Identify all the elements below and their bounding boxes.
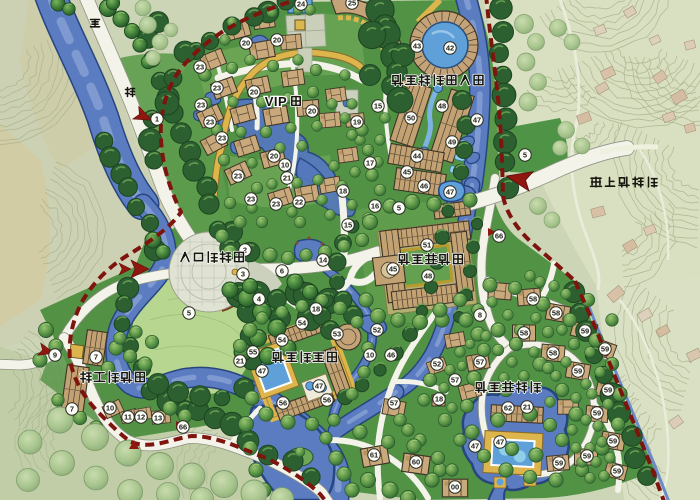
svg-text:23: 23 — [196, 63, 204, 72]
svg-text:44: 44 — [413, 152, 422, 161]
svg-text:51: 51 — [423, 241, 431, 250]
svg-text:47: 47 — [473, 116, 481, 125]
svg-text:59: 59 — [593, 409, 601, 418]
svg-text:54: 54 — [298, 319, 307, 328]
svg-text:21: 21 — [283, 174, 291, 183]
svg-text:11: 11 — [124, 413, 132, 422]
svg-text:23: 23 — [234, 172, 242, 181]
svg-text:56: 56 — [323, 396, 331, 405]
svg-text:6: 6 — [280, 267, 284, 276]
svg-text:58: 58 — [552, 309, 560, 318]
svg-text:66: 66 — [179, 423, 187, 432]
svg-text:46: 46 — [420, 182, 428, 191]
svg-text:3: 3 — [241, 270, 245, 279]
svg-text:50: 50 — [407, 114, 415, 123]
svg-text:20: 20 — [242, 39, 250, 48]
svg-text:47: 47 — [258, 367, 266, 376]
svg-text:23: 23 — [213, 84, 221, 93]
svg-text:5: 5 — [397, 204, 401, 213]
svg-text:59: 59 — [609, 437, 617, 446]
svg-text:59: 59 — [583, 452, 591, 461]
svg-text:47: 47 — [315, 382, 323, 391]
svg-text:13: 13 — [154, 414, 162, 423]
svg-text:46: 46 — [387, 351, 395, 360]
svg-text:20: 20 — [308, 107, 316, 116]
svg-text:8: 8 — [478, 311, 482, 320]
svg-text:59: 59 — [601, 345, 609, 354]
svg-text:52: 52 — [373, 326, 381, 335]
svg-text:21: 21 — [523, 403, 531, 412]
svg-text:60: 60 — [412, 458, 420, 467]
svg-text:23: 23 — [218, 134, 226, 143]
svg-text:45: 45 — [389, 265, 397, 274]
svg-text:20: 20 — [273, 36, 281, 45]
svg-text:23: 23 — [272, 200, 280, 209]
svg-text:54: 54 — [278, 336, 287, 345]
svg-text:16: 16 — [371, 202, 379, 211]
svg-text:59: 59 — [574, 367, 582, 376]
svg-text:66: 66 — [495, 232, 503, 241]
svg-text:23: 23 — [197, 101, 205, 110]
svg-text:7: 7 — [94, 353, 98, 362]
svg-text:47: 47 — [471, 442, 479, 451]
svg-text:21: 21 — [236, 357, 244, 366]
svg-text:5: 5 — [523, 151, 527, 160]
svg-text:57: 57 — [390, 399, 398, 408]
svg-text:55: 55 — [249, 348, 257, 357]
svg-text:59: 59 — [604, 386, 612, 395]
svg-text:17: 17 — [366, 159, 374, 168]
svg-text:57: 57 — [451, 376, 459, 385]
svg-text:62: 62 — [504, 404, 512, 413]
svg-text:14: 14 — [319, 256, 328, 265]
svg-text:10: 10 — [281, 161, 289, 170]
svg-text:59: 59 — [613, 467, 621, 476]
svg-text:59: 59 — [555, 459, 563, 468]
svg-text:15: 15 — [344, 221, 352, 230]
svg-text:53: 53 — [333, 330, 341, 339]
svg-text:52: 52 — [433, 360, 441, 369]
svg-text:20: 20 — [250, 88, 258, 97]
svg-text:58: 58 — [529, 295, 537, 304]
svg-text:00: 00 — [451, 483, 459, 492]
svg-text:23: 23 — [247, 195, 255, 204]
svg-text:10: 10 — [366, 351, 374, 360]
svg-text:24: 24 — [297, 0, 306, 9]
svg-text:48: 48 — [424, 272, 432, 281]
svg-text:18: 18 — [312, 305, 320, 314]
svg-text:47: 47 — [496, 438, 504, 447]
svg-text:9: 9 — [53, 351, 57, 360]
svg-text:58: 58 — [520, 329, 528, 338]
svg-text:61: 61 — [370, 451, 378, 460]
svg-text:1: 1 — [155, 115, 159, 124]
svg-text:7: 7 — [70, 405, 74, 414]
svg-text:23: 23 — [206, 118, 214, 127]
svg-text:45: 45 — [403, 168, 411, 177]
svg-text:47: 47 — [446, 188, 454, 197]
svg-text:VIP: VIP — [265, 94, 287, 109]
svg-text:43: 43 — [413, 42, 421, 51]
svg-text:22: 22 — [295, 198, 303, 207]
svg-text:25: 25 — [348, 0, 356, 8]
svg-text:42: 42 — [446, 44, 454, 53]
svg-text:12: 12 — [137, 413, 145, 422]
svg-text:58: 58 — [549, 349, 557, 358]
svg-text:49: 49 — [448, 138, 456, 147]
svg-text:18: 18 — [435, 395, 443, 404]
svg-text:20: 20 — [270, 152, 278, 161]
svg-text:15: 15 — [374, 102, 382, 111]
svg-text:5: 5 — [187, 309, 191, 318]
svg-text:56: 56 — [279, 399, 287, 408]
svg-text:19: 19 — [353, 118, 361, 127]
svg-text:48: 48 — [438, 102, 446, 111]
svg-text:10: 10 — [106, 404, 114, 413]
svg-text:59: 59 — [581, 327, 589, 336]
svg-text:18: 18 — [339, 187, 347, 196]
svg-text:57: 57 — [476, 358, 484, 367]
